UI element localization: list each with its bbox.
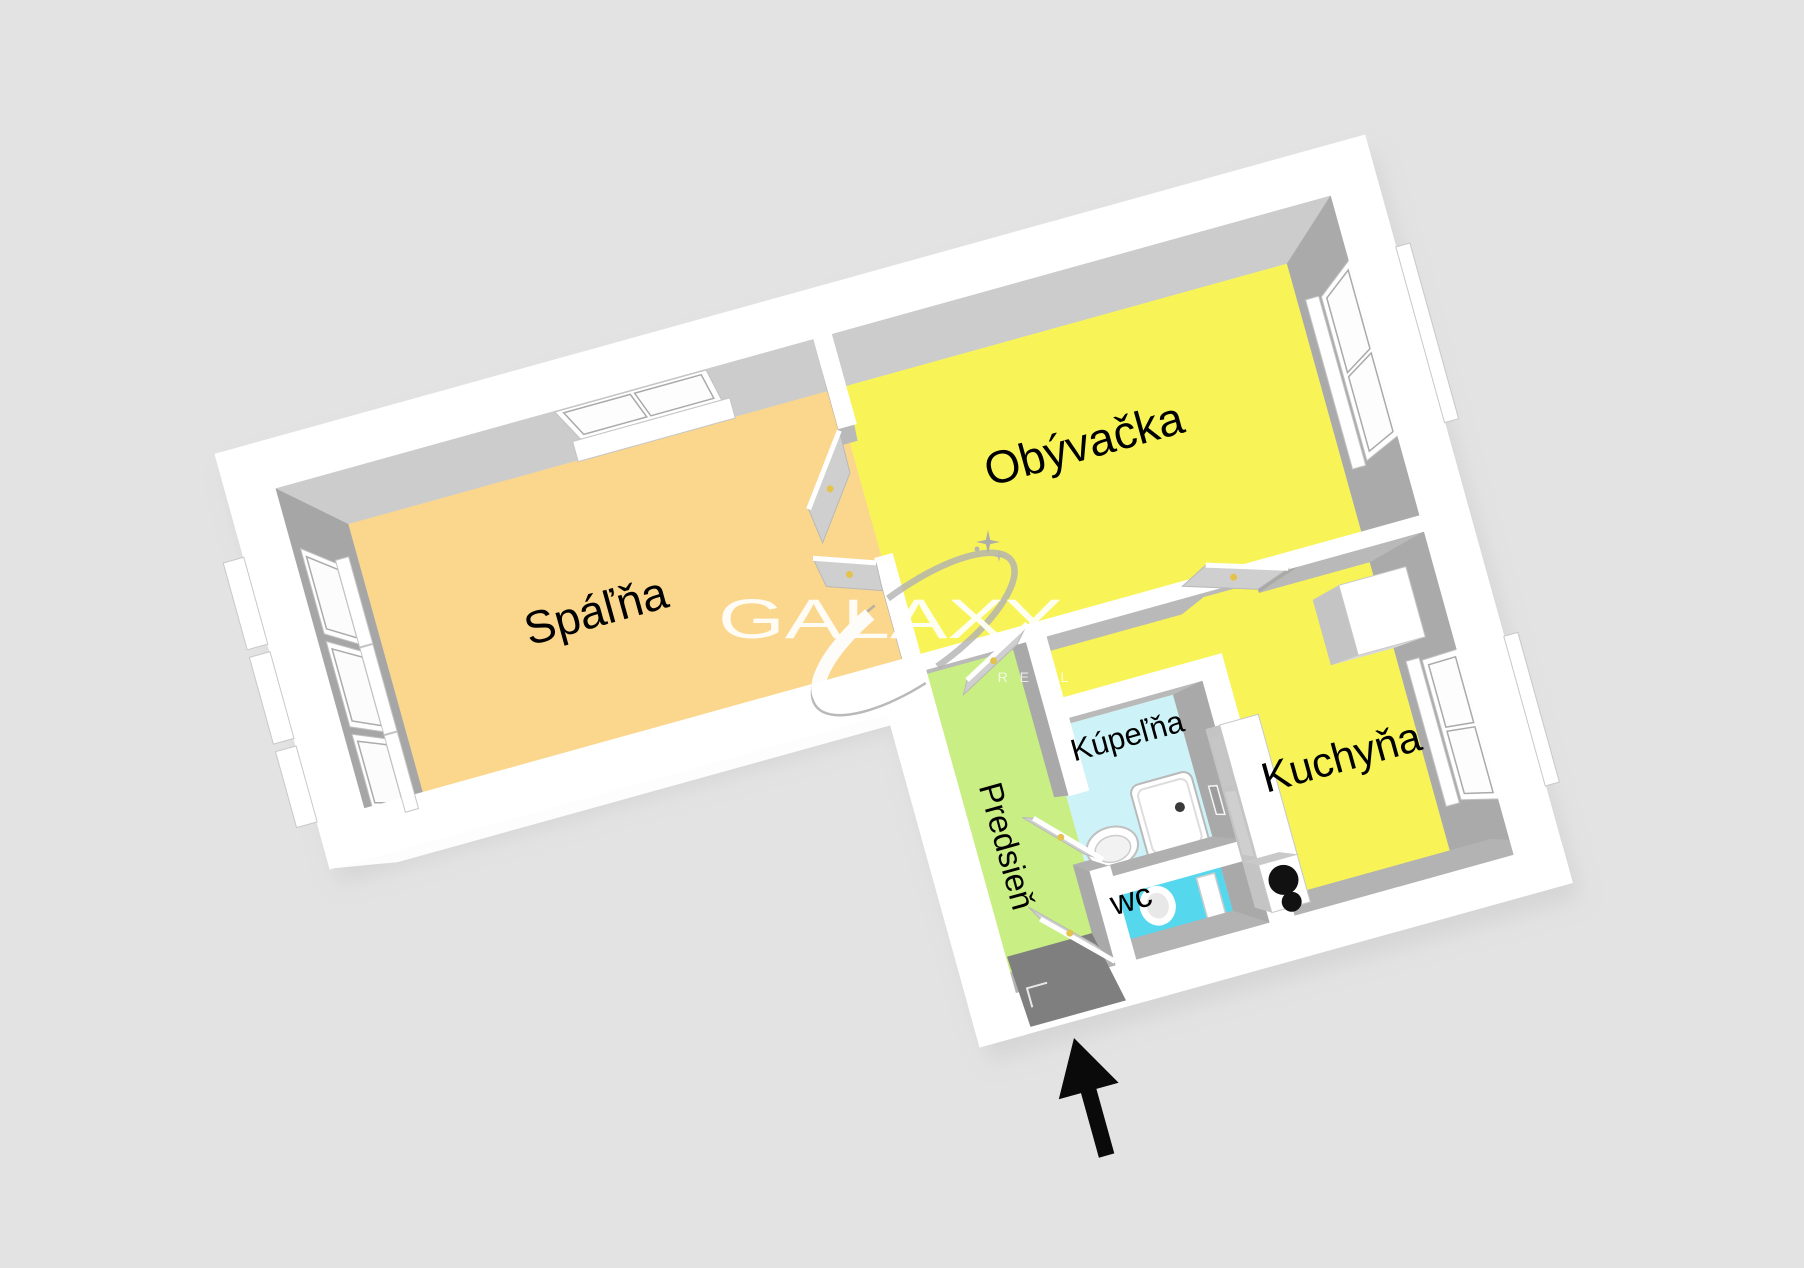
svg-text:R E A L: R E A L (998, 669, 1073, 685)
svg-text:GALAXY: GALAXY (718, 587, 1062, 650)
